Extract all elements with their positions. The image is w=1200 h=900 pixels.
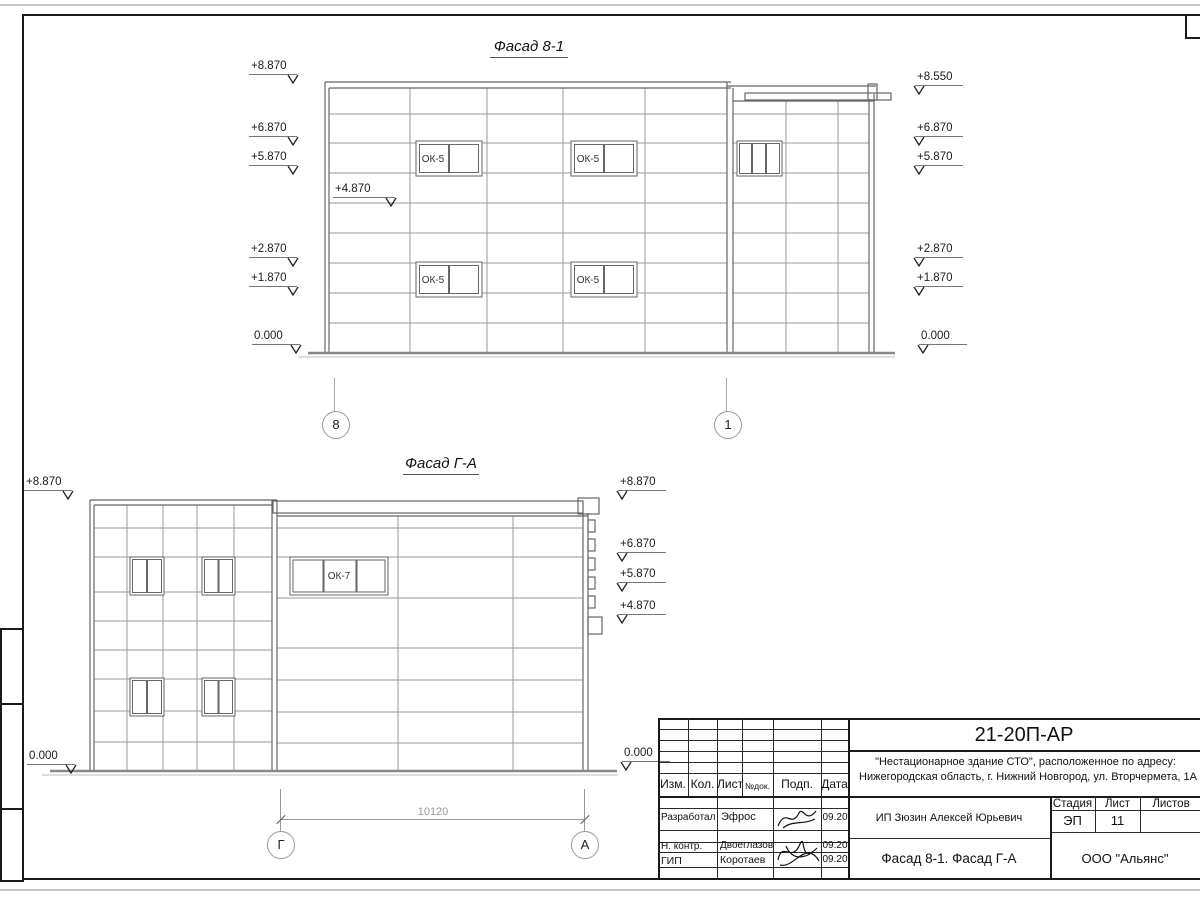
page-edge-top	[0, 4, 1200, 6]
window-label: ОК-5	[577, 275, 600, 286]
tb-header-data: Дата	[821, 777, 848, 791]
elevation-mark: +6.870	[915, 122, 963, 137]
elevation-mark: +4.870	[618, 600, 666, 615]
filing-box-3	[0, 808, 24, 882]
sheet-label: Лист	[1095, 798, 1140, 810]
elevation-mark: +8.550	[915, 71, 963, 86]
grid-bubble-g: Г	[267, 831, 295, 859]
tb-header-izm: Изм.	[658, 777, 688, 791]
facade1-panel-joints	[329, 88, 869, 352]
stage-value: ЭП	[1050, 813, 1095, 828]
sheet-number: 11	[1095, 813, 1140, 828]
elevation-mark: +2.870	[249, 243, 297, 258]
tb-role-3: ГИП	[661, 855, 682, 867]
window-small-4	[202, 678, 235, 716]
grid-bubble-1: 1	[714, 411, 742, 439]
facade2-title: Фасад Г-А	[403, 455, 479, 475]
grid-bubble-a: А	[571, 831, 599, 859]
tb-name-1: Эфрос	[721, 811, 756, 823]
dimension-value: 10120	[405, 806, 461, 818]
elevation-mark: 0.000	[622, 747, 670, 762]
tb-role-2: Н. контр.	[661, 841, 702, 852]
frame-bottom	[22, 878, 1200, 880]
elevation-mark: +1.870	[249, 272, 297, 287]
elevation-mark: +5.870	[249, 151, 297, 166]
grid-leader	[726, 378, 727, 411]
tb-date-1: 09.20	[822, 812, 848, 823]
grid-bubble-8: 8	[322, 411, 350, 439]
drawing-title: Фасад 8-1. Фасад Г-А	[848, 845, 1050, 873]
project-address-line1: "Нестационарное здание СТО", расположенн…	[848, 756, 1200, 768]
drawing-sheet: { "figures": { "facade1": { "title": "Фа…	[0, 0, 1200, 900]
elevation-mark: +6.870	[618, 538, 666, 553]
signature-2	[772, 834, 822, 870]
organization-name: ООО "Альянс"	[1050, 845, 1200, 873]
window-label: ОК-5	[422, 275, 445, 286]
elevation-mark: +8.870	[24, 476, 72, 491]
window-small-2	[202, 557, 235, 595]
tb-header-list: Лист	[717, 777, 742, 791]
elevation-mark: +2.870	[915, 243, 963, 258]
tb-header-ndok: №док.	[742, 781, 773, 791]
tb-name-2: Двоеглазов	[720, 840, 773, 851]
tb-role-1: Разработал	[661, 812, 715, 823]
facade2-panel-joints	[94, 505, 583, 770]
dimension-line	[281, 819, 585, 820]
client-name: ИП Зюзин Алексей Юрьевич	[848, 805, 1050, 831]
elevation-mark: +5.870	[915, 151, 963, 166]
page-edge-bottom	[0, 889, 1200, 891]
sheets-label: Листов	[1140, 798, 1200, 810]
filing-box-1	[0, 628, 24, 707]
window-3pane	[737, 141, 782, 176]
corner-stamp-box	[1185, 14, 1200, 39]
facade2-outline	[90, 498, 602, 770]
facade2-drawing: ОК-7	[40, 495, 620, 782]
elevation-mark: +5.870	[618, 568, 666, 583]
window-label: ОК-5	[422, 154, 445, 165]
elevation-mark: 0.000	[252, 330, 300, 345]
window-small-1	[130, 557, 164, 595]
elevation-mark: +4.870	[333, 183, 395, 198]
elevation-mark: 0.000	[919, 330, 967, 345]
facade1-title: Фасад 8-1	[490, 38, 568, 58]
tb-date-3: 09.20	[822, 854, 848, 865]
tb-header-kol: Кол.	[688, 777, 717, 791]
tb-name-3: Коротаев	[720, 854, 765, 866]
tb-date-2: 09.20	[822, 840, 848, 851]
extension-line	[280, 789, 281, 831]
facade1-drawing: ОК-5 ОК-5 ОК-5 ОК-5	[296, 78, 900, 365]
tb-header-podp: Подп.	[773, 777, 821, 791]
window-label: ОК-7	[328, 571, 351, 582]
extension-line	[584, 789, 585, 831]
elevation-mark: +1.870	[915, 272, 963, 287]
frame-top	[22, 14, 1200, 16]
document-number: 21-20П-АР	[848, 721, 1200, 749]
window-small-3	[130, 678, 164, 716]
elevation-mark: 0.000	[27, 750, 75, 765]
window-label: ОК-5	[577, 154, 600, 165]
grid-leader	[334, 378, 335, 411]
elevation-mark: +8.870	[249, 60, 297, 75]
filing-box-2	[0, 703, 24, 812]
project-address-line2: Нижегородская область, г. Нижний Новгоро…	[848, 771, 1200, 783]
stage-label: Стадия	[1050, 798, 1095, 810]
elevation-mark: +6.870	[249, 122, 297, 137]
signature-1	[774, 805, 820, 831]
elevation-mark: +8.870	[618, 476, 666, 491]
